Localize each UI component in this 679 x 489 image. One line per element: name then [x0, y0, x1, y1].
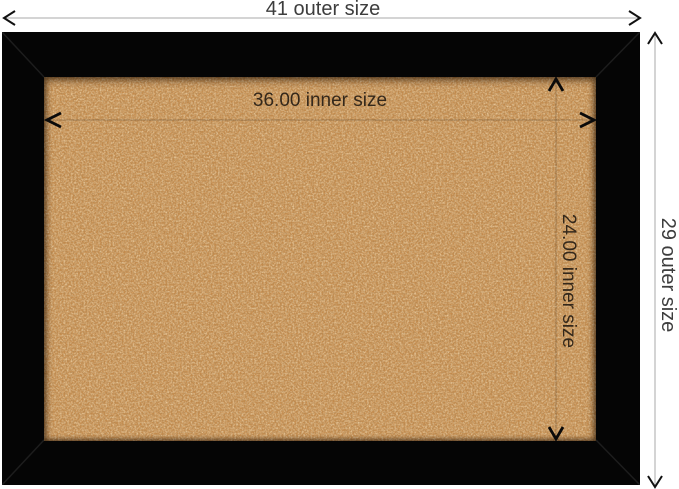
inner-height-label: 24.00 inner size: [558, 214, 578, 348]
cork-surface: [44, 77, 596, 441]
inner-width-label: 36.00 inner size: [44, 91, 596, 111]
cork-texture: [44, 77, 596, 441]
outer-width-label: 41 outer size: [0, 0, 646, 19]
outer-height-label: 29 outer size: [658, 218, 678, 333]
arrow-down-icon: [648, 476, 662, 487]
product-dimension-figure: 41 outer size 29 outer size 36.00 inner …: [0, 0, 679, 489]
arrow-up-icon: [648, 33, 662, 44]
